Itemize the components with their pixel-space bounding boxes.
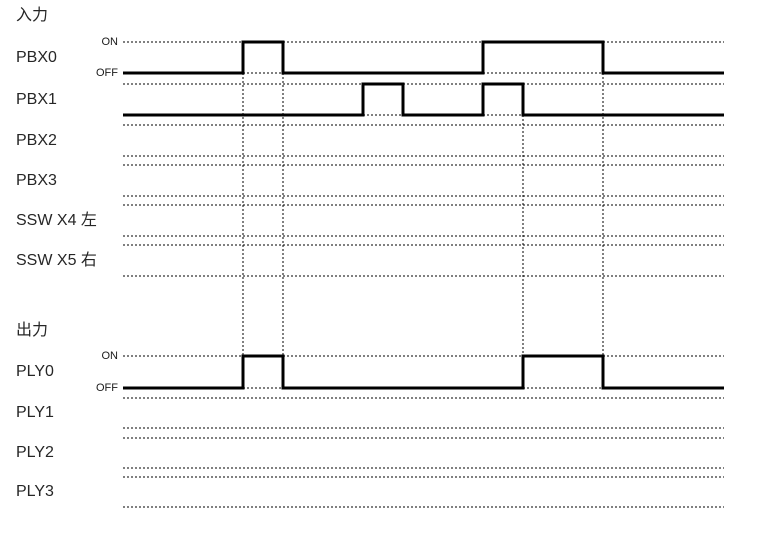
section-title-input: 入力	[16, 7, 48, 25]
channel-label-PBX0: PBX0	[16, 48, 57, 68]
waveform-PBX0	[123, 42, 724, 73]
channel-label-PBX1: PBX1	[16, 90, 57, 110]
timing-diagram: 入力 出力 PBX0ONOFFPBX1PBX2PBX3SSW X4 左SSW X…	[0, 0, 758, 534]
off-label-PBX0: OFF	[58, 66, 118, 80]
section-title-output: 出力	[16, 322, 48, 340]
off-label-PLY0: OFF	[58, 381, 118, 395]
channel-label-PLY3: PLY3	[16, 482, 54, 502]
channel-label-SSW X5 右: SSW X5 右	[16, 251, 97, 271]
channel-label-PBX3: PBX3	[16, 171, 57, 191]
channel-label-SSW X4 左: SSW X4 左	[16, 211, 97, 231]
channel-label-PBX2: PBX2	[16, 131, 57, 151]
on-label-PLY0: ON	[58, 349, 118, 363]
channel-label-PLY2: PLY2	[16, 443, 54, 463]
waveform-canvas	[0, 0, 758, 534]
waveform-PBX1	[123, 84, 724, 115]
channel-label-PLY0: PLY0	[16, 362, 54, 382]
waveform-PLY0	[123, 356, 724, 388]
channel-label-PLY1: PLY1	[16, 403, 54, 423]
on-label-PBX0: ON	[58, 35, 118, 49]
